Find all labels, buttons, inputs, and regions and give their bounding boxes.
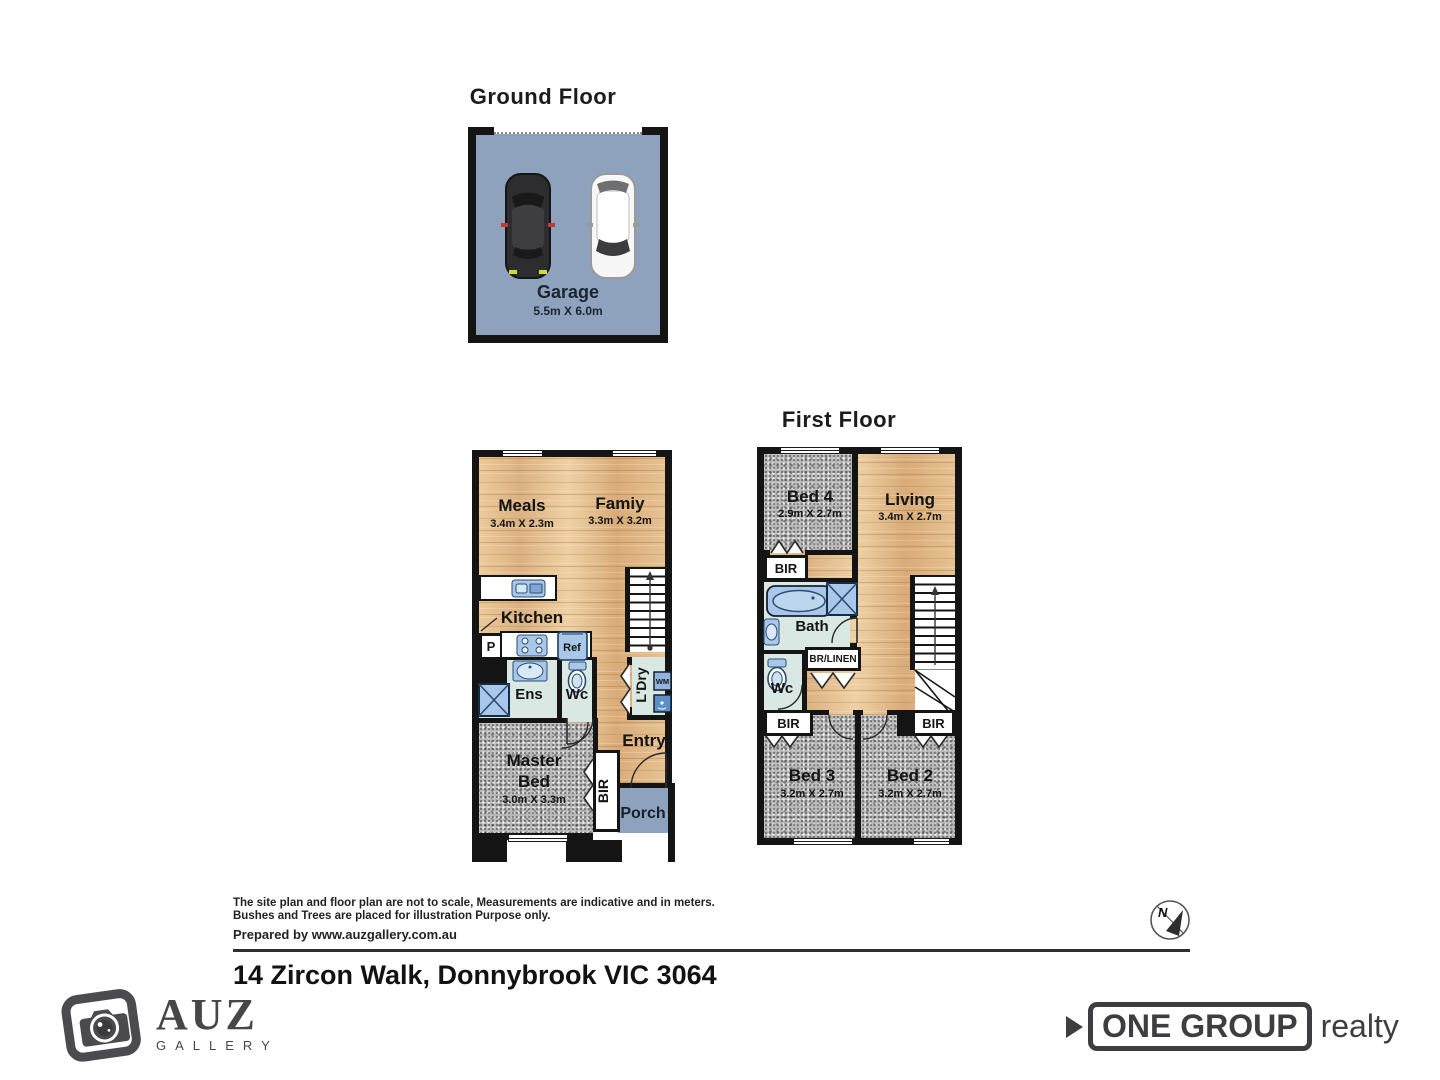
fridge-icon: Ref [558, 632, 587, 660]
footer-rule [233, 949, 1190, 952]
entry-door-arc [631, 753, 666, 788]
one-group-realty-logo: ONE GROUP realty [1066, 1002, 1399, 1051]
living-label: Living [868, 490, 952, 510]
kitchen-sink-icon [512, 580, 545, 597]
bed2-dims: 3.2m X 2.7m [868, 788, 952, 800]
garage-dims: 5.5m X 6.0m [468, 304, 668, 318]
laundry-label: L'Dry [633, 655, 651, 715]
first-floor-right-unit: BIR BR/LINEN BIR BIR [757, 447, 962, 845]
bed3-bir-bifold-door [766, 736, 798, 747]
camera-icon [58, 984, 150, 1064]
wc-label: Wc [559, 686, 595, 703]
fridge-label: Ref [563, 642, 581, 654]
compass-north-letter: N [1158, 905, 1168, 920]
bath-sink-icon [764, 619, 779, 645]
meals-dims: 3.4m X 2.3m [482, 518, 562, 530]
family-dims: 3.3m X 3.2m [580, 515, 660, 527]
br-linen-bifold-door [811, 673, 855, 688]
master-bed-dims: 3.0m X 3.3m [491, 794, 577, 806]
porch-label: Porch [614, 805, 672, 823]
master-bed-label: Master Bed [491, 750, 577, 792]
one-group-wordmark: ONE GROUP [1088, 1002, 1312, 1051]
master-bir-bifold-door [584, 759, 593, 811]
washing-machine-label: WM [656, 677, 669, 686]
auz-name: AUZ [156, 995, 279, 1035]
disclaimer-line-2: Bushes and Trees are placed for illustra… [233, 910, 550, 922]
bed3-door-arc [829, 715, 853, 739]
bed2-label: Bed 2 [868, 766, 952, 786]
shower-icon [827, 583, 857, 615]
bed3-dims: 3.2m X 2.7m [770, 788, 854, 800]
auz-sub: GALLERY [156, 1038, 279, 1053]
bed4-dims: 2.9m X 2.7m [768, 508, 852, 520]
stair-winder-treads [915, 670, 955, 712]
entry-label: Entry [606, 731, 682, 751]
prepared-by-text: Prepared by www.auzgallery.com.au [233, 927, 457, 942]
meals-label: Meals [482, 496, 562, 516]
laundry-bifold-door [621, 663, 630, 715]
ground-floor-title: Ground Floor [443, 84, 643, 110]
living-dims: 3.4m X 2.7m [868, 511, 952, 523]
garage-label: Garage [468, 282, 668, 303]
bath-label: Bath [782, 618, 842, 635]
disclaimer-line-1: The site plan and floor plan are not to … [233, 897, 715, 909]
cooktop-icon [517, 635, 547, 656]
ensuite-sink-icon [513, 661, 547, 681]
first-floor-title: First Floor [739, 407, 939, 433]
north-compass-icon: N [1146, 893, 1194, 947]
family-label: Famiy [580, 494, 660, 514]
wc-door-arc [562, 722, 588, 748]
kitchen-label: Kitchen [487, 608, 577, 628]
wc-label: Wc [763, 680, 801, 697]
stairs-direction-arrow [646, 571, 654, 651]
first-floor-left-unit: P Ref [472, 450, 677, 862]
bed2-door-arc [863, 715, 887, 739]
shower-icon [479, 684, 509, 716]
bed2-bir-bifold-door [915, 736, 947, 747]
play-triangle-icon [1066, 1016, 1083, 1038]
washing-machine-icon: WM [654, 672, 671, 690]
garage-plan: Garage 5.5m X 6.0m [468, 127, 668, 343]
bed4-label: Bed 4 [768, 487, 852, 507]
bathtub-icon [767, 586, 831, 616]
stairs-direction-arrow [931, 586, 939, 665]
realty-wordmark: realty [1321, 1008, 1399, 1045]
ensuite-label: Ens [509, 686, 549, 703]
bed4-bir-bifold-door [771, 541, 803, 553]
property-address: 14 Zircon Walk, Donnybrook VIC 3064 [233, 960, 717, 991]
floorplan-page: Ground Floor [0, 0, 1440, 1080]
auz-gallery-wordmark: AUZ GALLERY [156, 995, 279, 1053]
bed3-label: Bed 3 [770, 766, 854, 786]
white-car-icon [586, 174, 640, 278]
black-car-icon [501, 174, 555, 278]
laundry-tub-icon [654, 695, 671, 712]
auz-gallery-logo: AUZ GALLERY [58, 984, 279, 1064]
master-bir-label: BIR [595, 758, 613, 824]
